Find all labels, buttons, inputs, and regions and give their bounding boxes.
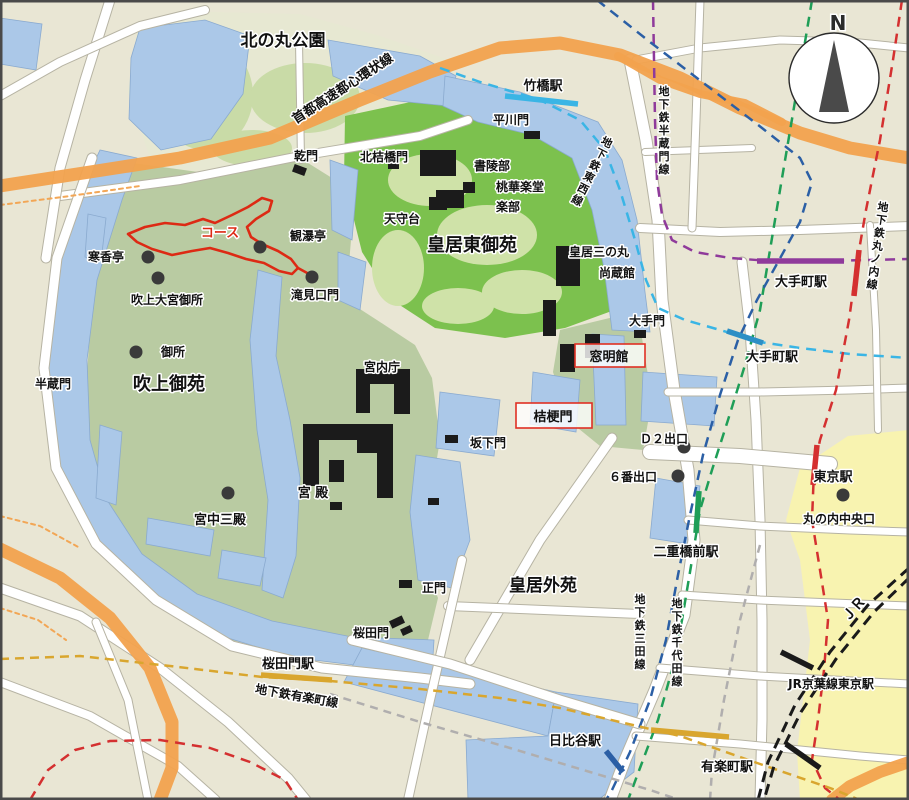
kyuden-building [303,424,319,486]
tokagakudo-building [463,182,475,193]
sannomaru-building [543,300,556,336]
gakubu-label: 楽部 [496,199,520,214]
imperial-palace-area-map: 北の丸公園皇居東御苑吹上御苑皇居外苑乾門北桔橋門平川門書陵部桃華楽堂楽部天守台皇… [0,0,909,800]
kunaicho-building [394,384,410,414]
shoryobu-building [420,150,456,176]
seimon-label: 正門 [422,581,446,595]
tokyo-station-label: 東京駅 [813,469,853,485]
kankotei-label: 寒香亭 [87,249,124,264]
jr-keiyo-label: JR京葉線東京駅 [787,676,875,691]
chiyoda-line-label: 地下鉄千代田線 [671,596,684,688]
sakuradamon-station-label: 桜田門駅 [262,656,315,672]
kitanomaru-park-label: 北の丸公園 [241,30,326,51]
mita-line-label: 地下鉄三田線 [635,592,647,671]
fukiage-omiya-label: 吹上大宮御所 [131,292,203,307]
kanbakutei-label: 観瀑亭 [290,228,326,243]
kyuden-building [377,440,393,498]
sakurada-mon-label: 桜田門 [353,625,389,640]
nijubashimae-station-marker [696,491,699,533]
kokyo-gaien-label: 皇居外苑 [509,575,577,596]
palace-outbuilding [330,502,342,510]
marunouchi-chuo-label: 丸の内中央口 [802,511,875,526]
gosho-dot [130,346,143,359]
kunaicho-label: 宮内庁 [364,359,400,374]
corner-pond [0,18,42,70]
sannomaru-building [560,344,575,372]
hibiya-station-label: 日比谷駅 [549,733,602,749]
hirakawa-mon-gate [524,131,540,139]
kitahanebashi-mon-label: 北桔橋門 [360,149,408,164]
takimiguchi-mon-label: 滝見口門 [291,287,339,302]
kankotei-dot [142,251,155,264]
otemachi-station-2-label: 大手町駅 [746,349,799,365]
kyuchu-sanden-label: 宮中三殿 [194,512,247,528]
kyuden-building [329,460,344,482]
tenshudai-building [429,197,447,210]
takebashi-station-label: 竹橋駅 [522,78,563,94]
sakashita-mon-label: 坂下門 [470,435,506,450]
sakashita-mon-gate [445,435,458,443]
tokagakudo-label: 桃華楽堂 [496,179,544,194]
otemachi-station-1-label: 大手町駅 [775,274,828,290]
seimon-gate [399,580,412,588]
kunaicho-building [356,369,370,413]
course-label: コース [201,226,239,241]
kyuchu-sanden-dot [222,487,235,500]
kanbakutei-dot [254,241,267,254]
kyuden-label: 宮 殿 [298,485,330,501]
east-garden-lawn [372,230,424,306]
map-canvas: 北の丸公園皇居東御苑吹上御苑皇居外苑乾門北桔橋門平川門書陵部桃華楽堂楽部天守台皇… [0,0,909,800]
fukiage-omiya-dot [152,272,165,285]
somei-kan-label: 窓明館 [589,349,628,365]
d2-exit-label: Ｄ２出口 [640,431,688,446]
takimiguchi-mon-dot [306,271,319,284]
tokyo-station-dot [837,489,850,502]
gosho-label: 御所 [160,344,185,359]
higashi-gyoen-label: 皇居東御苑 [427,234,517,256]
hanzomon-line-label: 地下鉄半蔵門線 [659,84,671,176]
compass-north-label: N [830,11,847,35]
east-garden-lawn [422,288,494,324]
nijubashimae-station-label: 二重橋前駅 [653,544,719,560]
exit-6-label: ６番出口 [609,469,657,484]
road [668,388,909,392]
shozokan-label: 尚蔵館 [599,265,635,280]
kikyo-mon-label: 桔梗門 [533,409,572,425]
sannomaru-label: 皇居三の丸 [569,244,630,259]
exit-6-dot [672,470,685,483]
yurakucho-station-label: 有楽町駅 [701,759,754,775]
otemon-gate [634,330,646,338]
inui-mon-label: 乾門 [294,148,318,163]
palace-outbuilding [428,498,439,505]
shoryobu-label: 書陵部 [474,158,510,173]
tenshudai-label: 天守台 [384,211,420,226]
otemon-label: 大手門 [629,313,665,328]
hanzomon-label: 半蔵門 [35,376,71,391]
hirakawa-mon-label: 平川門 [493,113,529,127]
fukiage-gyoen-label: 吹上御苑 [133,373,205,395]
road [299,42,301,160]
